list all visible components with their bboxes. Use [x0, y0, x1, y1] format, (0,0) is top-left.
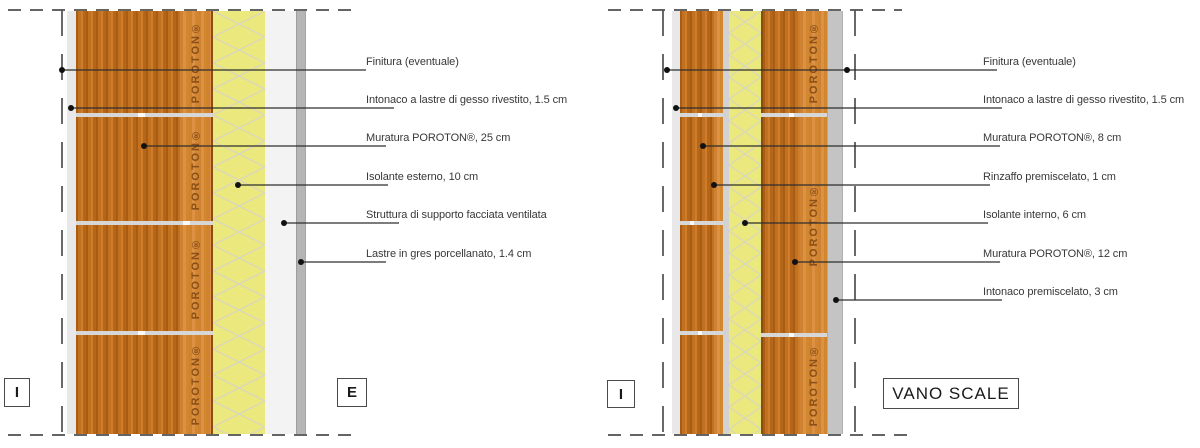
right-marker-vano-scale: VANO SCALE	[883, 378, 1019, 409]
label-intonaco-premiscelato: Intonaco premiscelato, 3 cm	[983, 286, 1118, 299]
label-muratura-8: Muratura POROTON®, 8 cm	[983, 132, 1121, 145]
label-struttura-supporto: Struttura di supporto facciata ventilata	[366, 209, 547, 222]
callout-dot	[141, 143, 147, 149]
left-marker-interior: I	[4, 378, 30, 407]
callout-dot	[664, 67, 670, 73]
callout-dot	[673, 105, 679, 111]
callout-dot	[844, 67, 850, 73]
callout-dot	[711, 182, 717, 188]
callout-dot	[833, 297, 839, 303]
label-muratura-12: Muratura POROTON®, 12 cm	[983, 248, 1127, 261]
label-isolante-interno: Isolante interno, 6 cm	[983, 209, 1086, 222]
label-finitura-right: Finitura (eventuale)	[983, 56, 1076, 69]
callout-dot	[792, 259, 798, 265]
right-marker-interior: I	[607, 380, 635, 408]
callout-dot	[59, 67, 65, 73]
label-muratura-25: Muratura POROTON®, 25 cm	[366, 132, 510, 145]
label-intonaco-gesso-right: Intonaco a lastre di gesso rivestito, 1.…	[983, 94, 1184, 107]
callout-dot	[700, 143, 706, 149]
callout-dot	[235, 182, 241, 188]
callout-dot	[281, 220, 287, 226]
label-lastre-gres: Lastre in gres porcellanato, 1.4 cm	[366, 248, 531, 261]
callout-dot	[298, 259, 304, 265]
label-finitura: Finitura (eventuale)	[366, 56, 459, 69]
callout-dot	[68, 105, 74, 111]
label-intonaco-gesso: Intonaco a lastre di gesso rivestito, 1.…	[366, 94, 567, 107]
left-marker-exterior: E	[337, 378, 367, 407]
callout-dot	[742, 220, 748, 226]
label-isolante-esterno: Isolante esterno, 10 cm	[366, 171, 478, 184]
wall-section-diagrams: POROTON® POROTON® POROTON® POROTON® PORO…	[0, 0, 1200, 448]
label-rinzaffo: Rinzaffo premiscelato, 1 cm	[983, 171, 1116, 184]
